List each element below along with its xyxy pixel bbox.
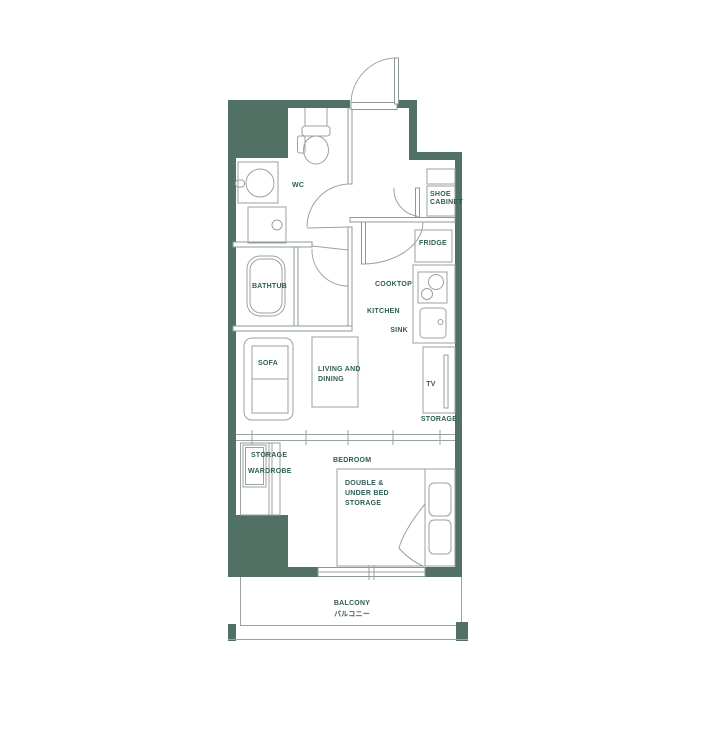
wc-door	[307, 184, 350, 228]
corridor-left-wall	[348, 227, 352, 331]
tv-storage-label: STORAGE	[421, 416, 457, 423]
wc-door-arc	[307, 184, 350, 227]
cooktop-box	[418, 272, 447, 303]
toilet-icon	[298, 108, 331, 164]
wc-door-leaf	[307, 227, 350, 228]
hall-bottom-wall	[350, 218, 455, 223]
bathroom-door	[312, 246, 348, 286]
entrance-door	[351, 58, 399, 110]
wall-left	[228, 100, 236, 577]
entrance-door-arc	[351, 58, 395, 103]
pillow-icon	[429, 520, 451, 554]
living-dining-label-2: DINING	[318, 376, 344, 383]
wall-top-right-stub	[409, 100, 417, 160]
hall-door	[394, 188, 420, 217]
tv-label: TV	[426, 381, 436, 388]
wc-right-wall	[348, 108, 352, 184]
burner-large-icon	[429, 275, 444, 290]
wall-top-left-block	[228, 100, 288, 158]
sink-label: SINK	[390, 327, 408, 334]
wall-top	[228, 100, 350, 108]
floor-plan-drawing: WC SHOE CABINET FRIDGE COOKTOP KITCHEN S…	[0, 0, 720, 741]
kitchen-door	[362, 222, 424, 264]
wc-label: WC	[292, 182, 304, 189]
closet-storage-label: STORAGE	[251, 452, 287, 459]
bed-label-2: UNDER BED	[345, 490, 389, 497]
wall-bottom-left	[228, 567, 318, 577]
washing-machine-icon	[248, 207, 286, 243]
sink-box	[420, 308, 446, 338]
blanket-fold	[399, 504, 425, 566]
balcony-stub-right	[456, 622, 468, 641]
balcony-window	[318, 565, 425, 580]
balcony-stub-left	[228, 624, 236, 641]
wall-pillar-block	[236, 515, 288, 567]
bathroom-divider-wall	[294, 247, 298, 331]
doors	[307, 58, 423, 286]
bed-label-1: DOUBLE &	[345, 480, 384, 487]
bathroom-door-leaf	[312, 246, 348, 250]
hall-door-arc	[394, 188, 417, 216]
sofa-icon	[244, 338, 293, 420]
hall-door-leaf	[416, 188, 420, 217]
tv-icon	[444, 355, 448, 408]
kitchen-door-arc	[363, 222, 423, 264]
cooktop-label: COOKTOP	[375, 281, 412, 288]
sofa-label: SOFA	[258, 360, 278, 367]
shoe-cabinet-label-2: CABINET	[430, 199, 463, 206]
kitchen-door-leaf	[362, 222, 366, 264]
entrance-threshold	[351, 103, 397, 110]
balcony-label-en: BALCONY	[334, 600, 370, 607]
bedroom-label: BEDROOM	[333, 457, 371, 464]
wall-step	[409, 152, 462, 160]
wardrobe-label: WARDROBE	[248, 468, 292, 475]
kitchen-counter	[413, 265, 455, 343]
floor-plan: WC SHOE CABINET FRIDGE COOKTOP KITCHEN S…	[0, 0, 720, 741]
bed-label-3: STORAGE	[345, 500, 381, 507]
washroom-bottom-wall	[233, 326, 352, 331]
wall-right	[455, 152, 462, 577]
pillow-icon	[429, 483, 451, 516]
fridge-label: FRIDGE	[419, 240, 447, 247]
shoe-cabinet-label-1: SHOE	[430, 191, 451, 198]
balcony-label-ja: バルコニー	[334, 610, 370, 618]
bathtub-label: BATHTUB	[252, 283, 287, 290]
burner-small-icon	[422, 289, 433, 300]
kitchen-label: KITCHEN	[367, 308, 400, 315]
tv-cabinet	[423, 347, 455, 413]
faucet-icon	[438, 320, 443, 325]
washbasin-icon	[236, 162, 279, 203]
living-dining-label-1: LIVING AND	[318, 366, 361, 373]
entrance-door-leaf	[395, 58, 399, 104]
bathroom-door-arc	[312, 249, 348, 286]
balcony-outline	[228, 577, 468, 640]
wall-bottom-right	[425, 567, 462, 577]
